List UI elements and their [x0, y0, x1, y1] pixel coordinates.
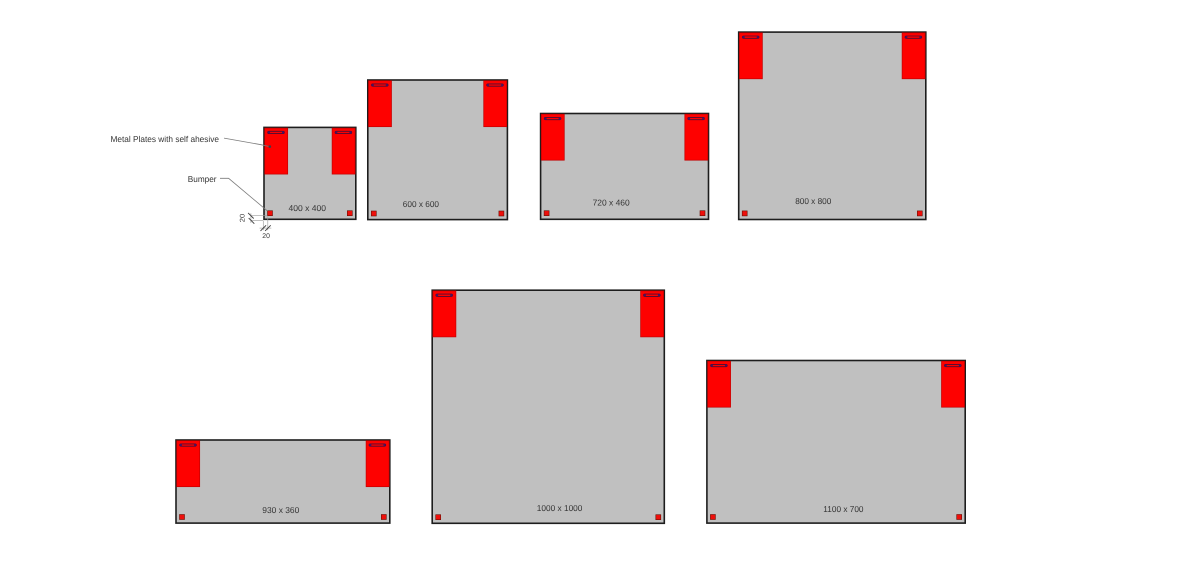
svg-text:930 x 360: 930 x 360: [262, 505, 299, 515]
svg-text:600 x 600: 600 x 600: [403, 199, 439, 209]
svg-text:800 x 800: 800 x 800: [795, 196, 831, 206]
svg-text:720 x 460: 720 x 460: [593, 197, 630, 207]
svg-text:1100 x 700: 1100 x 700: [823, 504, 863, 514]
svg-text:20: 20: [240, 214, 247, 223]
svg-text:Metal Plates with self ahesive: Metal Plates with self ahesive: [111, 134, 220, 144]
svg-text:1000 x 1000: 1000 x 1000: [537, 503, 583, 513]
svg-text:20: 20: [262, 233, 270, 240]
svg-text:400 x 400: 400 x 400: [289, 203, 327, 213]
svg-text:Bumper: Bumper: [188, 174, 217, 184]
